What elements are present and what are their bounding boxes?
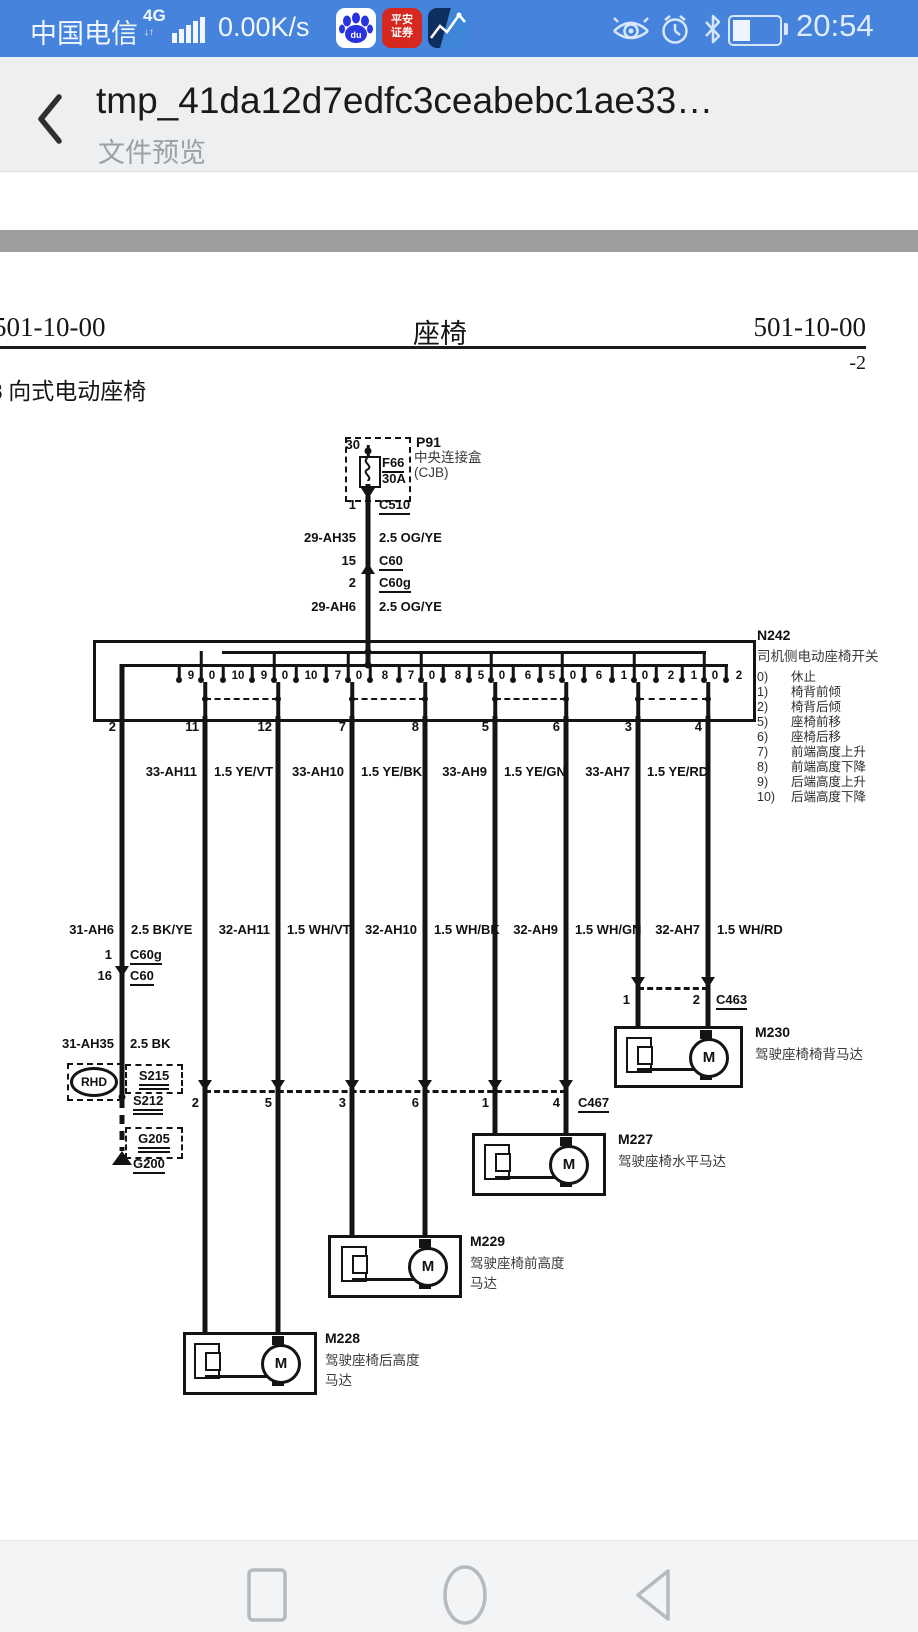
connector-c463-line [638, 987, 708, 990]
baidu-paw-icon: du [336, 8, 376, 48]
page-number: -2 [806, 352, 866, 375]
junction-dot [365, 649, 372, 656]
pin-label: 2 [175, 1095, 199, 1111]
app-header: tmp_41da12d7edfc3ceabebc1ae33… 文件预览 [0, 57, 918, 172]
motor-symbol: M [261, 1344, 301, 1384]
pin-label: 1 [288, 497, 356, 513]
arrow-down-icon [361, 488, 375, 499]
stocks-app-icon [428, 8, 468, 48]
ground-dashed-wire [120, 1099, 125, 1151]
motor-symbol: M [689, 1038, 729, 1078]
coupling-dashed-link [205, 698, 278, 700]
contact-number: 9 [183, 669, 199, 683]
component-notch [637, 1046, 653, 1065]
motor-id-label: M230 [755, 1024, 790, 1040]
connector-c60-label: C60 [130, 968, 154, 986]
connector-c510-label: C510 [379, 497, 410, 515]
svg-text:du: du [351, 30, 362, 40]
splice-s215-label: S215 [139, 1068, 169, 1086]
pin-label: 2 [670, 992, 700, 1008]
cjb-id-label: P91 [416, 434, 441, 450]
switch-drop [120, 664, 125, 716]
circuit-label: 33-AH11 [117, 764, 197, 780]
pin-label: 15 [288, 553, 356, 569]
arrow-down-icon [115, 966, 129, 977]
connector-c463-label: C463 [716, 992, 747, 1010]
wire-spec-label: 2.5 OG/YE [379, 599, 442, 615]
back-button[interactable] [34, 92, 64, 146]
page-code-left: 501-10-00 [0, 312, 105, 343]
motor-name-label2: 马达 [325, 1372, 352, 1389]
header-rule [0, 346, 866, 349]
circuit-label: 29-AH35 [288, 530, 356, 546]
ground-g200-label: G200 [133, 1156, 165, 1174]
wire-pin12 [276, 716, 281, 1334]
motor-symbol: M [549, 1145, 589, 1185]
splice-s215-box: S215 [125, 1064, 183, 1094]
battery-fill [733, 20, 750, 41]
motor-symbol: M [408, 1247, 448, 1287]
page-code-right: 501-10-00 [726, 312, 866, 343]
ground-g205-label: G205 [138, 1131, 170, 1149]
status-bar: 中国电信 4G ↓↑ 0.00K/s du 平安 证券 [0, 0, 918, 57]
network-type-label: 4G [143, 6, 166, 26]
switch-position: 休止 [791, 670, 816, 685]
pin-label: 1 [44, 947, 112, 963]
battery-nub [784, 23, 788, 35]
rhd-dashed-box: RHD [67, 1063, 123, 1101]
stock-chart-icon [428, 8, 468, 48]
motor-name-label: 驾驶座椅前高度 [470, 1255, 565, 1272]
baidu-app-icon: du [336, 8, 376, 48]
motor-id-label: M228 [325, 1330, 360, 1346]
motor-name-label: 驾驶座椅后高度 [325, 1352, 420, 1369]
back-nav-button[interactable] [630, 1567, 676, 1623]
motor-name-label: 驾驶座椅水平马达 [618, 1153, 726, 1170]
switch-pin: 2 [86, 719, 116, 735]
pingan-line2: 证券 [382, 27, 422, 40]
alarm-icon [658, 12, 692, 46]
circuit-label: 29-AH6 [288, 599, 356, 615]
home-button[interactable] [441, 1564, 489, 1626]
connector-c60-label: C60 [379, 553, 403, 571]
pingan-line1: 平安 [382, 14, 422, 27]
network-arrows-icon: ↓↑ [144, 27, 154, 38]
wire-pin8 [423, 716, 428, 1237]
motor-id-label: M227 [618, 1131, 653, 1147]
network-speed-label: 0.00K/s [218, 12, 310, 43]
coupling-dashed-link [638, 698, 708, 700]
wire-pin7 [350, 716, 355, 1237]
coupling-dashed-link [352, 698, 425, 700]
carrier-label: 中国电信 [30, 12, 138, 51]
battery-icon [728, 15, 782, 46]
motor-id-label: M229 [470, 1233, 505, 1249]
motor-name-label: 驾驶座椅椅背马达 [755, 1046, 863, 1063]
splice-s212-label: S212 [133, 1093, 163, 1111]
recents-button[interactable] [246, 1567, 288, 1623]
fuse-squiggle [361, 458, 374, 481]
fuse-rating-label: 30A [382, 471, 406, 487]
clock-label: 20:54 [796, 8, 874, 44]
rhd-oval: RHD [70, 1067, 118, 1097]
android-nav-bar [0, 1540, 918, 1632]
page-separator-bar [0, 230, 918, 252]
connector-c60g-label: C60g [379, 575, 411, 593]
motor-name-label2: 马达 [470, 1275, 497, 1292]
contact-number: 0 [204, 669, 220, 683]
wire-pin11 [203, 716, 208, 1334]
circuit-label: 31-AH35 [34, 1036, 114, 1052]
wire-spec-label: 2.5 BK [130, 1036, 170, 1052]
pin-label: 1 [600, 992, 630, 1008]
ground-g205-box: G205 [125, 1127, 183, 1159]
arrow-up-icon [361, 563, 375, 574]
signal-strength-icon [172, 15, 208, 43]
file-title: tmp_41da12d7edfc3ceabebc1ae33… [96, 80, 713, 122]
pin-label: 16 [44, 968, 112, 984]
eye-comfort-icon [610, 15, 652, 43]
switch-id-label: N242 [757, 627, 790, 643]
wire-spec-label: 2.5 OG/YE [379, 530, 442, 546]
feed-wire [366, 484, 371, 640]
bus-rail [122, 664, 728, 667]
coupling-dashed-link [495, 698, 566, 700]
phone-screen: 中国电信 4G ↓↑ 0.00K/s du 平安 证券 [0, 0, 918, 1632]
connector-c60g-label: C60g [130, 947, 162, 965]
file-preview-subtitle: 文件预览 [98, 131, 206, 170]
connector-c467-label: C467 [578, 1095, 609, 1113]
contact-number: 10 [225, 669, 251, 683]
connector-c467-line [205, 1090, 566, 1093]
pingan-securities-app-icon: 平安 证券 [382, 8, 422, 48]
cjb-name2-label: (CJB) [414, 464, 449, 481]
pin-label: 2 [288, 575, 356, 591]
section-title: 8 向式电动座椅 [0, 372, 146, 406]
bluetooth-icon [702, 12, 724, 46]
switch-name-label: 司机侧电动座椅开关 [757, 648, 879, 665]
